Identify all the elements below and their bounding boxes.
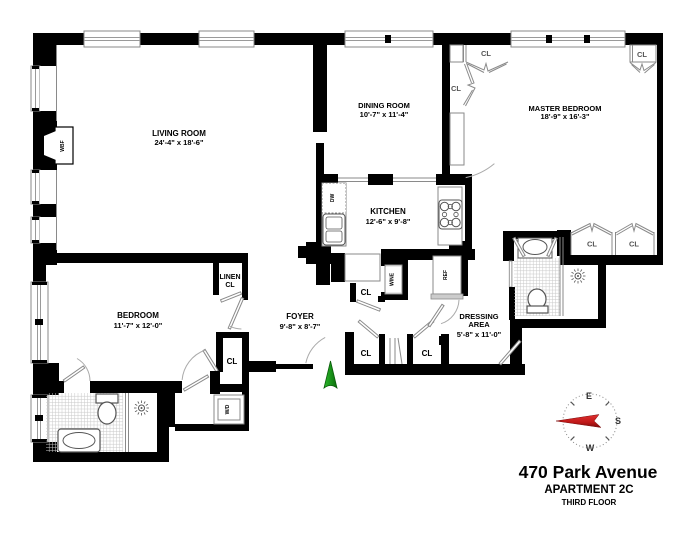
svg-text:S: S [615,416,621,426]
svg-text:AREA: AREA [468,320,490,329]
svg-text:LIVING ROOM: LIVING ROOM [152,129,206,138]
svg-text:KITCHEN: KITCHEN [370,207,406,216]
svg-text:W: W [586,443,595,453]
svg-text:LINEN: LINEN [220,274,241,281]
svg-text:5'-8" x 11'-0": 5'-8" x 11'-0" [457,330,502,339]
svg-text:CL: CL [481,49,491,58]
svg-text:24'-4" x 18'-6": 24'-4" x 18'-6" [154,138,203,147]
svg-text:THIRD FLOOR: THIRD FLOOR [562,498,617,507]
svg-text:CL: CL [451,84,461,93]
svg-text:CL: CL [629,240,639,249]
svg-text:470 Park Avenue: 470 Park Avenue [519,462,658,482]
svg-text:CL: CL [227,357,238,366]
svg-text:9'-8" x 8'-7": 9'-8" x 8'-7" [280,322,321,331]
svg-text:E: E [586,391,592,401]
svg-text:CL: CL [637,50,647,59]
svg-text:11'-7" x 12'-0": 11'-7" x 12'-0" [114,321,163,330]
svg-text:12'-6" x 9'-8": 12'-6" x 9'-8" [366,217,411,226]
svg-text:CL: CL [361,349,372,358]
svg-text:CL: CL [225,282,235,289]
svg-text:DINING ROOM: DINING ROOM [358,101,410,110]
svg-text:APARTMENT 2C: APARTMENT 2C [544,484,633,496]
svg-text:FOYER: FOYER [286,312,314,321]
svg-text:CL: CL [361,288,372,297]
svg-text:BEDROOM: BEDROOM [117,311,159,320]
svg-text:CL: CL [422,349,433,358]
svg-text:10'-7" x 11'-4": 10'-7" x 11'-4" [360,110,409,119]
svg-text:REF: REF [443,270,449,280]
svg-text:18'-9" x 16'-3": 18'-9" x 16'-3" [540,112,589,121]
svg-text:WINE: WINE [390,272,396,286]
svg-text:W/D: W/D [225,404,231,414]
svg-text:CL: CL [587,240,597,249]
svg-text:DW: DW [330,194,336,203]
svg-text:WBF: WBF [60,140,66,151]
